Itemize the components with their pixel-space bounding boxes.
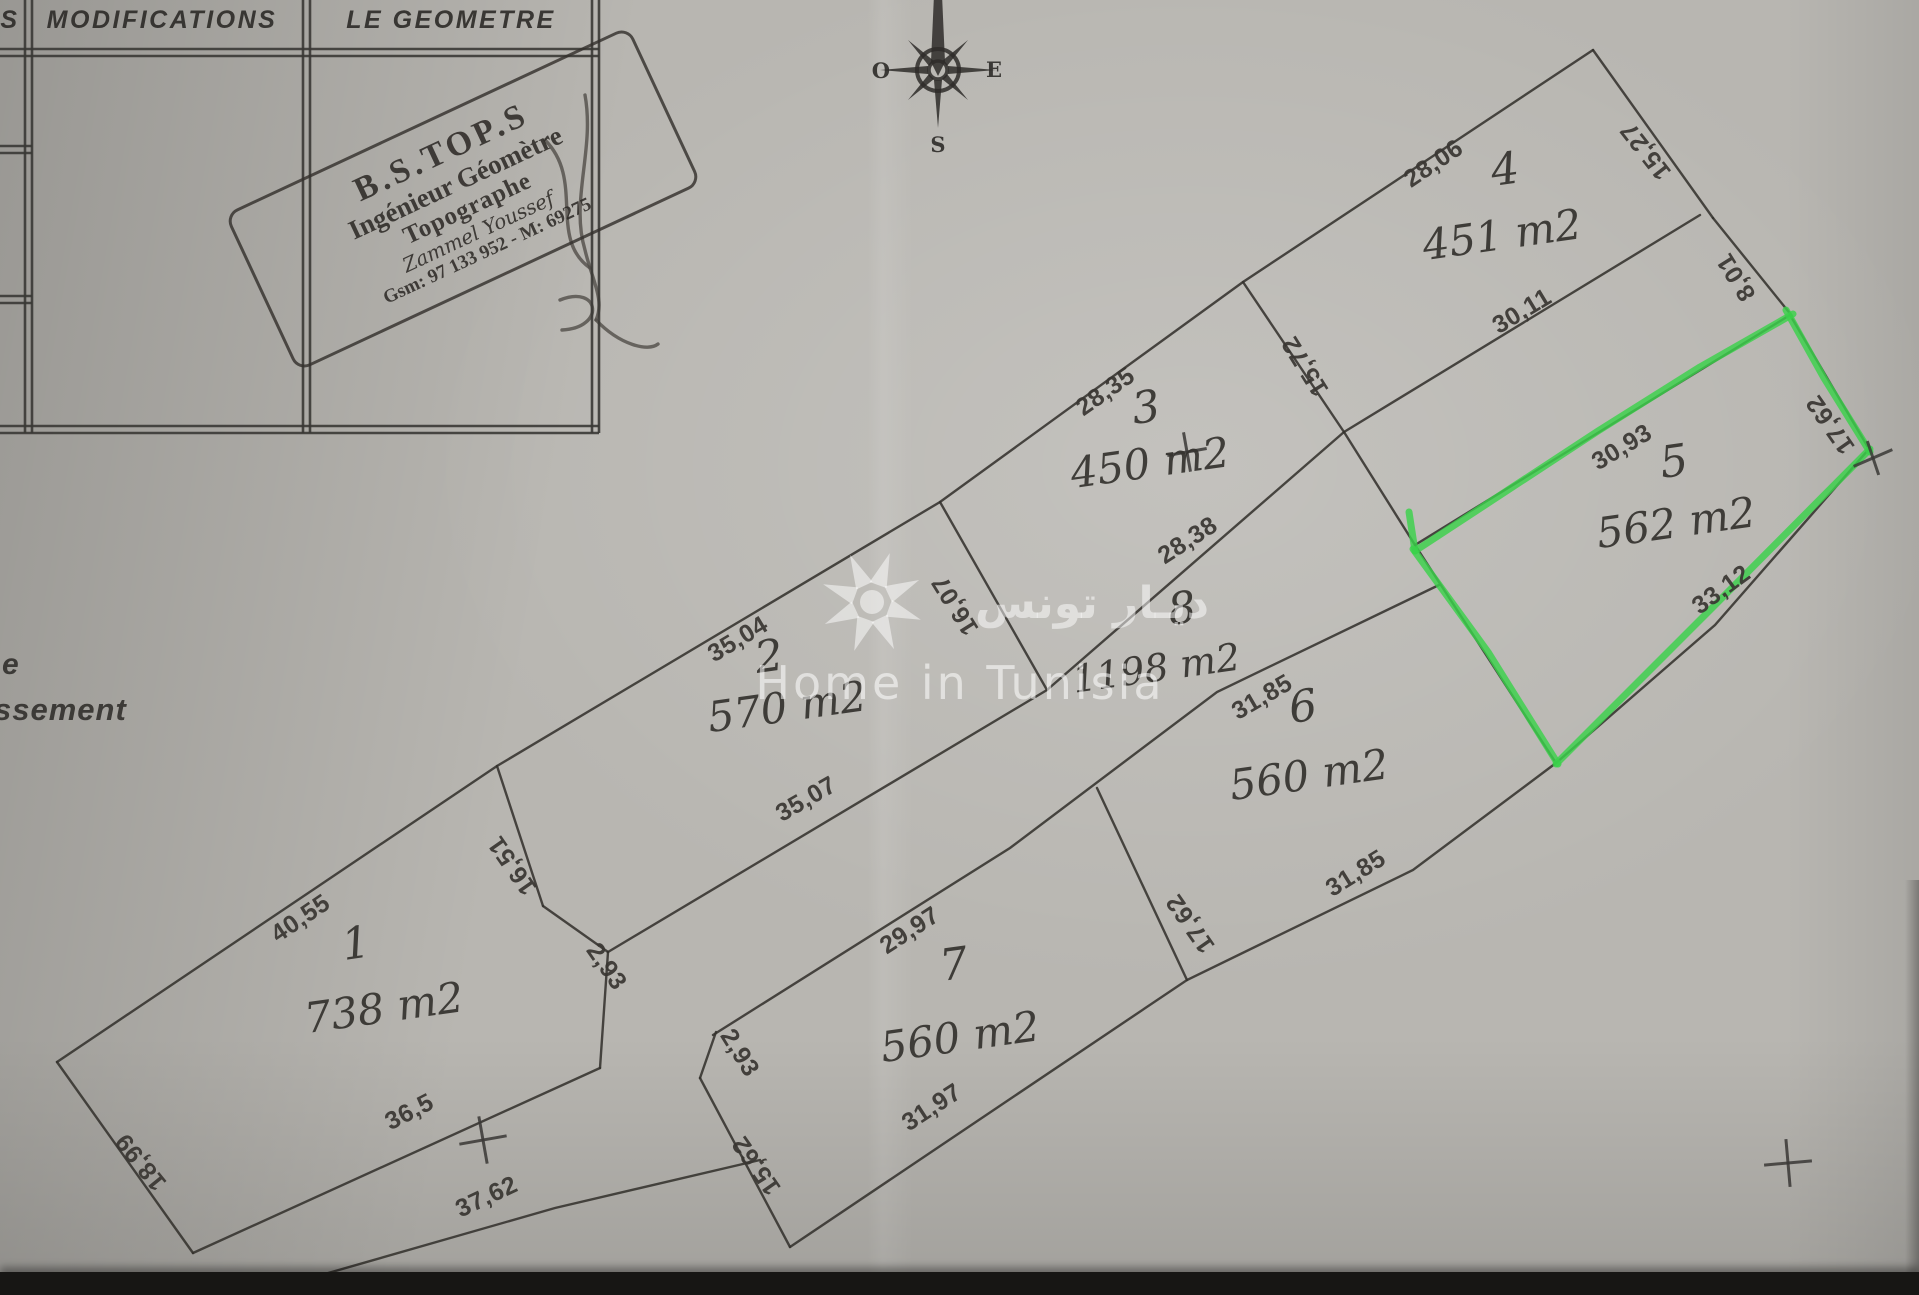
parcel-area-4: 451 m2 [1418,199,1584,270]
dimension-label-d37_62: 37,62 [451,1170,522,1223]
dimension-label-d18_99: 18,99 [109,1128,172,1196]
table-left-column-fragment: S [0,6,19,35]
dimension-label-d31_97: 31,97 [897,1078,967,1137]
parcel-5-green-highlight [1413,549,1558,764]
parcel-number-5: 5 [1657,434,1692,488]
dimension-label-d8_01: 8,01 [1711,248,1762,306]
parcel-boundary-line [1344,432,1415,545]
dimension-label-d15_27: 15,27 [1615,117,1677,186]
parcel-area-7: 560 m2 [877,1001,1042,1072]
dimension-label-d16_07: 16,07 [926,570,984,640]
parcel-area-1: 738 m2 [301,972,466,1043]
parcel-number-4: 4 [1487,142,1523,197]
parcel-boundary-line [193,1068,600,1253]
parcel-boundary-line [700,1032,716,1078]
compass-west-label: O [872,58,890,83]
parcel-number-7: 7 [937,937,972,991]
margin-text-fragment-1: e [2,648,19,682]
dimension-label-d31_85b: 31,85 [1321,844,1391,902]
dimension-label-d30_11: 30,11 [1487,283,1556,340]
compass-south-label: S [930,132,945,157]
parcel-boundary-line [608,690,1047,952]
parcel-area-5: 562 m2 [1593,487,1758,558]
parcel-boundary-line [1593,50,1713,218]
dimension-label-d28_38: 28,38 [1153,511,1223,570]
dimension-label-d30_93: 30,93 [1587,418,1657,476]
parcel-boundary-line [790,763,1556,1247]
table-header-geometre: LE GEOMETRE [346,6,555,35]
dimension-label-d36_5: 36,5 [380,1088,438,1136]
scanned-cadastral-plan-photo: O E S 40,5535,0428,3528,0615,278,0130,11… [0,0,1919,1295]
parcel-number-3: 3 [1129,380,1164,434]
dimension-label-d29_97: 29,97 [875,901,945,960]
parcel-number-1: 1 [339,916,374,970]
parcel-number-6: 6 [1286,679,1321,733]
dimension-label-d16_51: 16,51 [482,831,542,900]
photo-right-shadow [1905,880,1919,1295]
photo-bottom-black-band [0,1272,1919,1295]
parcel-boundary-line [713,585,1439,1035]
dimension-label-d28_06: 28,06 [1399,134,1469,194]
parcel-area-2: 570 m2 [704,671,869,742]
parcel-area-6: 560 m2 [1226,739,1391,810]
dimension-label-d2_93a: 2,93 [581,938,633,996]
compass-east-label: E [986,57,1002,82]
dimension-label-d2_93b: 2,93 [714,1024,765,1082]
parcel-number-8: 8 [1165,581,1200,635]
parcel-boundary-line [1097,788,1187,980]
parcel-5-green-highlight [1409,512,1415,551]
parcel-area-3: 450 m2 [1066,427,1232,498]
table-header-modifications: MODIFICATIONS [47,6,278,35]
dimension-label-d17_62b: 17,62 [1160,889,1220,958]
dimension-label-d15_72: 15,72 [1276,331,1334,401]
margin-text-fragment-2: ssement [0,692,127,728]
compass-rose-icon: O E S [872,0,1002,157]
survey-cross-mark [1762,1137,1814,1189]
compass-south-needle [934,80,942,128]
parcel-number-2: 2 [751,629,787,684]
